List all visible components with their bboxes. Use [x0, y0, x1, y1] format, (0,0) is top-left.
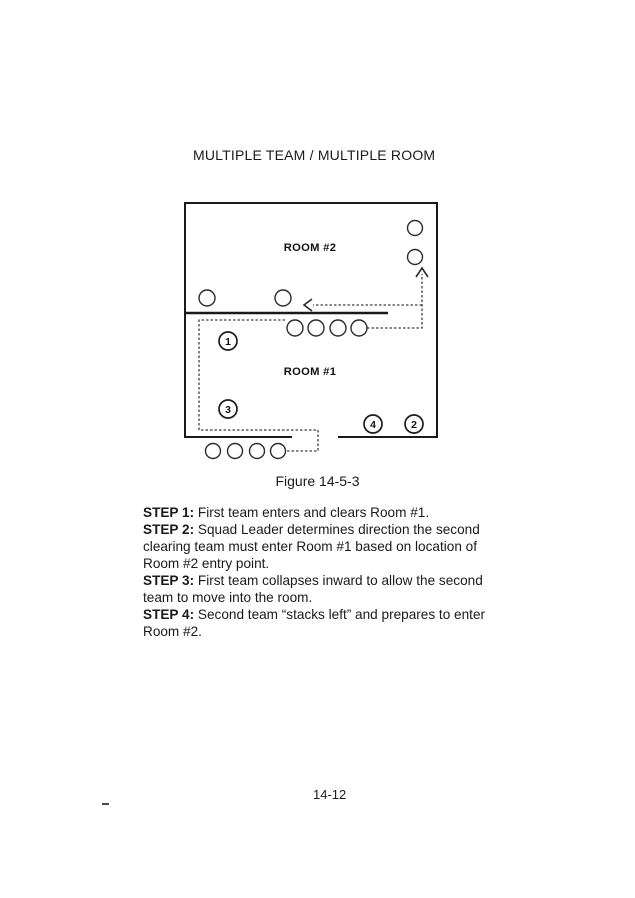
soldier-circle [287, 320, 303, 336]
room2-soldier-circles [199, 221, 423, 307]
room1-label: ROOM #1 [284, 366, 336, 378]
soldier-circle [408, 250, 423, 265]
page-number: 14-12 [313, 787, 346, 802]
step-4: STEP 4: Second team “stacks left” and pr… [143, 606, 507, 640]
step-4-text: Second team “stacks left” and prepares t… [143, 607, 485, 639]
marker-position-4: 4 [364, 415, 382, 433]
page-title: MULTIPLE TEAM / MULTIPLE ROOM [193, 147, 435, 163]
numbered-markers: 1 3 4 2 [219, 332, 423, 433]
marker-position-1: 1 [219, 332, 237, 350]
steps-text-block: STEP 1: First team enters and clears Roo… [143, 504, 507, 640]
soldier-circle [250, 444, 265, 459]
soldier-circle [228, 444, 243, 459]
soldier-circle [330, 320, 346, 336]
soldier-circle [206, 444, 221, 459]
step-2-label: STEP 2: [143, 522, 194, 537]
route-entry-room2 [367, 274, 422, 328]
step-3: STEP 3: First team collapses inward to a… [143, 572, 507, 606]
soldier-circle [408, 221, 423, 236]
step-3-text: First team collapses inward to allow the… [143, 573, 483, 605]
step-4-label: STEP 4: [143, 607, 194, 622]
outside-stack-circles [206, 444, 286, 459]
step-1-text: First team enters and clears Room #1. [198, 505, 429, 520]
step-1: STEP 1: First team enters and clears Roo… [143, 504, 507, 521]
soldier-circle [275, 290, 291, 306]
marker-number: 3 [225, 404, 231, 416]
route-second-team [199, 320, 318, 451]
step-3-label: STEP 3: [143, 573, 194, 588]
step-1-label: STEP 1: [143, 505, 194, 520]
soldier-circle [351, 320, 367, 336]
soldier-circle [271, 444, 286, 459]
document-page: MULTIPLE TEAM / MULTIPLE ROOM [0, 0, 635, 898]
stray-mark [102, 803, 109, 805]
marker-number: 1 [225, 336, 231, 348]
marker-number: 4 [370, 419, 376, 431]
left-arrowhead-icon [304, 299, 312, 311]
room2-label: ROOM #2 [284, 242, 336, 254]
room1-stack-circles [287, 320, 367, 336]
step-2: STEP 2: Squad Leader determines directio… [143, 521, 507, 572]
marker-position-2: 2 [405, 415, 423, 433]
marker-number: 2 [411, 419, 417, 431]
room-clearing-diagram: 1 3 4 2 ROOM #2 ROOM #1 [180, 198, 442, 460]
soldier-circle [308, 320, 324, 336]
step-2-text: Squad Leader determines direction the se… [143, 522, 480, 571]
figure-caption: Figure 14-5-3 [0, 473, 635, 489]
soldier-circle [199, 290, 215, 306]
marker-position-3: 3 [219, 400, 237, 418]
up-arrowhead-icon [416, 268, 428, 277]
